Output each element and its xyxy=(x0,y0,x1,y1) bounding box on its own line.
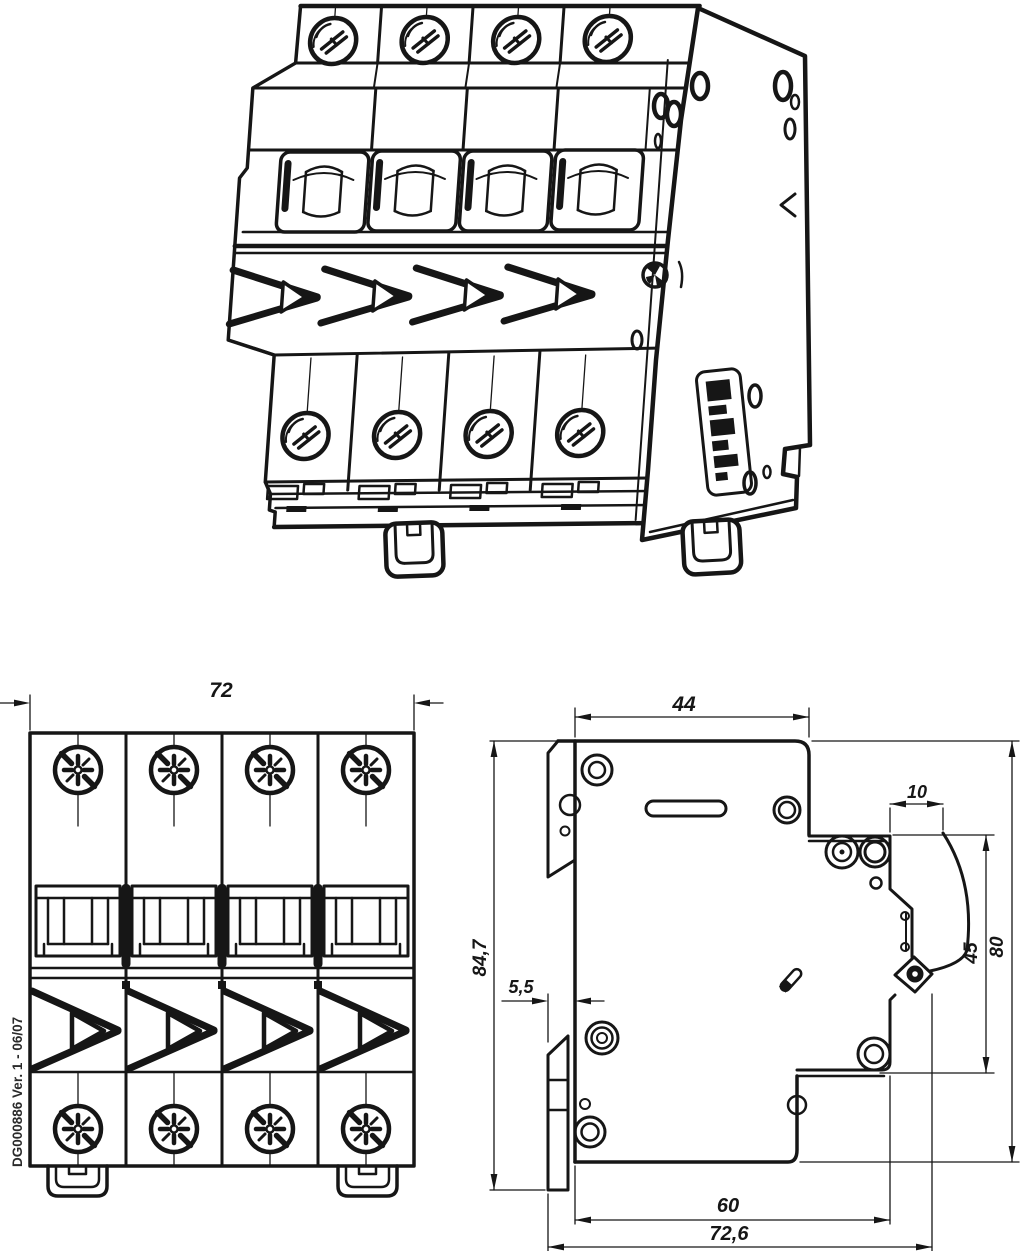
front-view: 72 xyxy=(0,679,443,1196)
dim-45-label: 45 xyxy=(961,942,982,965)
dim-60-label: 60 xyxy=(717,1195,739,1217)
dim-72-6-label: 72,6 xyxy=(710,1223,750,1245)
dim-80-label: 80 xyxy=(987,936,1008,958)
technical-drawing-page: 72 xyxy=(0,0,1024,1251)
dim-84-7-label: 84,7 xyxy=(470,938,491,976)
front-dim-width: 72 xyxy=(0,679,443,730)
iso-toggle-levers xyxy=(276,150,644,232)
side-view: 44 10 84,7 5,5 45 80 60 72,6 xyxy=(470,693,1019,1251)
dim-72-label: 72 xyxy=(209,679,233,702)
drawing-canvas: 72 xyxy=(0,0,1024,1251)
side-terminal-screws xyxy=(826,836,890,1070)
side-housing-details xyxy=(560,755,806,1147)
iso-direction-arrows xyxy=(229,267,593,324)
iso-front-faces xyxy=(215,6,699,527)
front-din-clips xyxy=(48,1166,397,1196)
drawing-code-label: DG000886 Ver. 1 - 06/07 xyxy=(10,1017,25,1167)
dim-10-label: 10 xyxy=(907,782,927,802)
iso-din-feet xyxy=(385,519,742,577)
dim-44-label: 44 xyxy=(671,693,696,716)
isometric-view xyxy=(215,6,810,577)
dim-5-5-label: 5,5 xyxy=(508,977,534,997)
